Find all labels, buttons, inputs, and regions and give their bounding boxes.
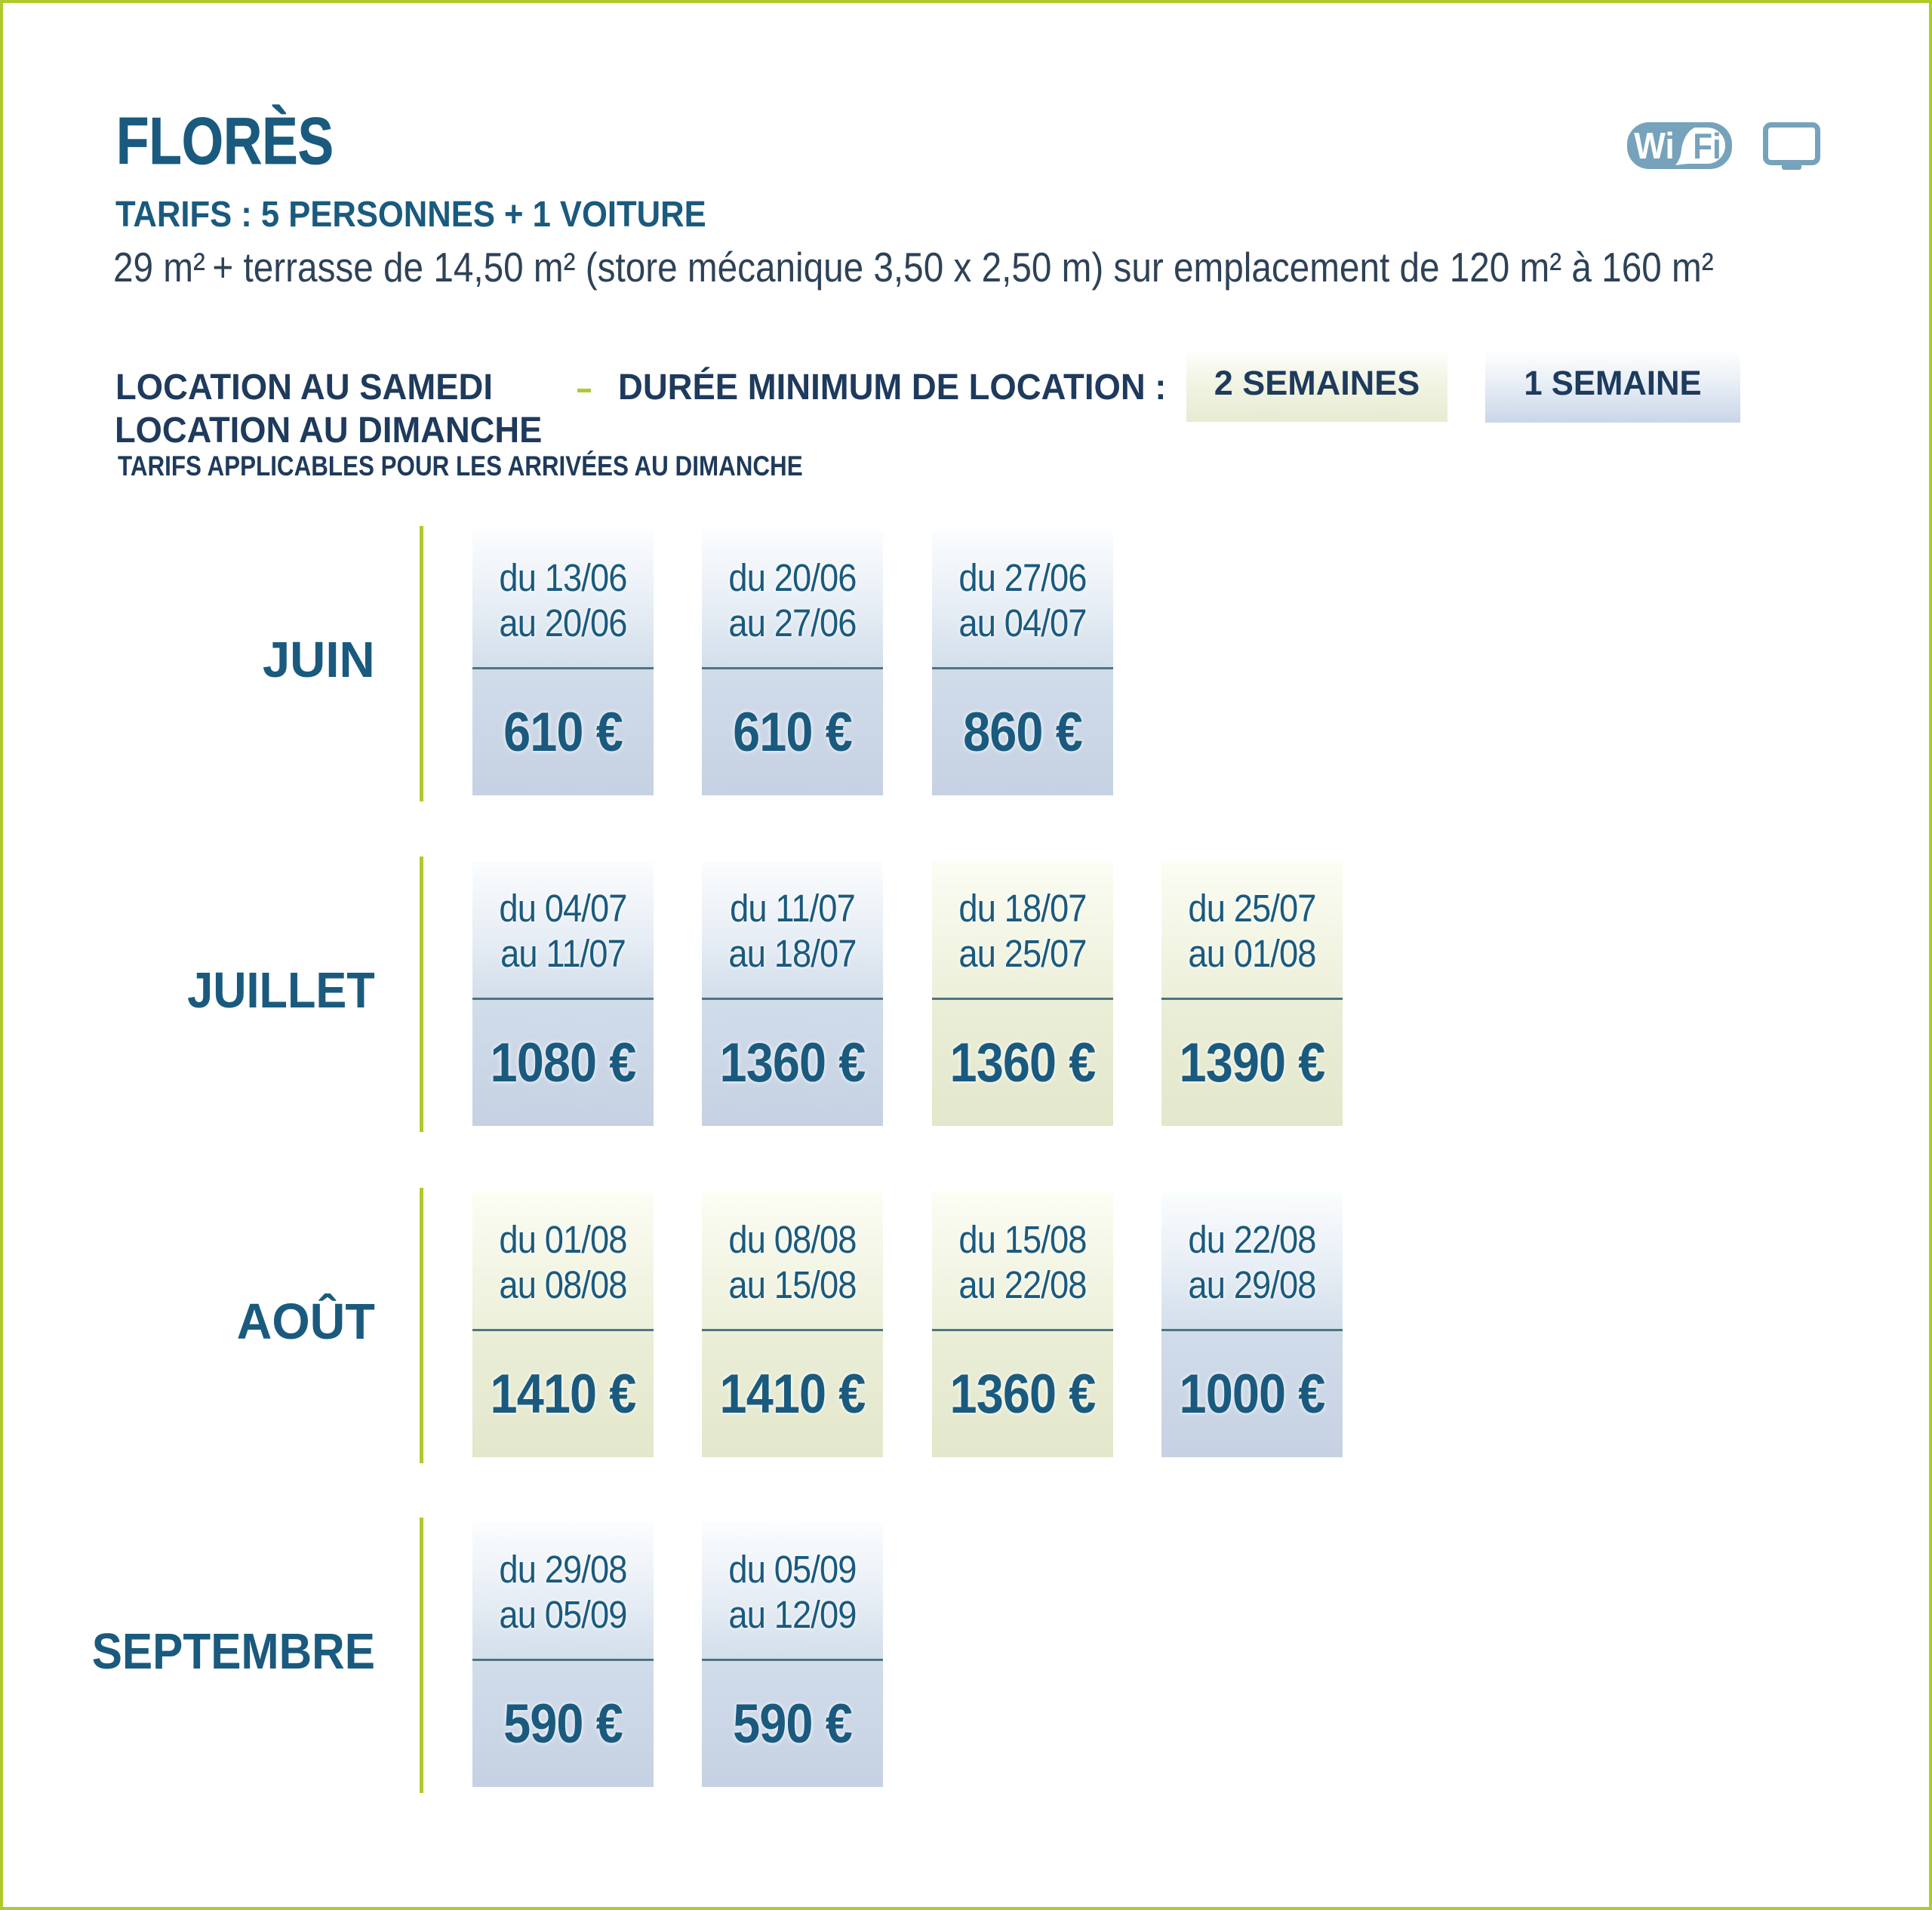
svg-text:Fi: Fi	[1693, 128, 1721, 167]
svg-text:Wi: Wi	[1634, 125, 1674, 167]
